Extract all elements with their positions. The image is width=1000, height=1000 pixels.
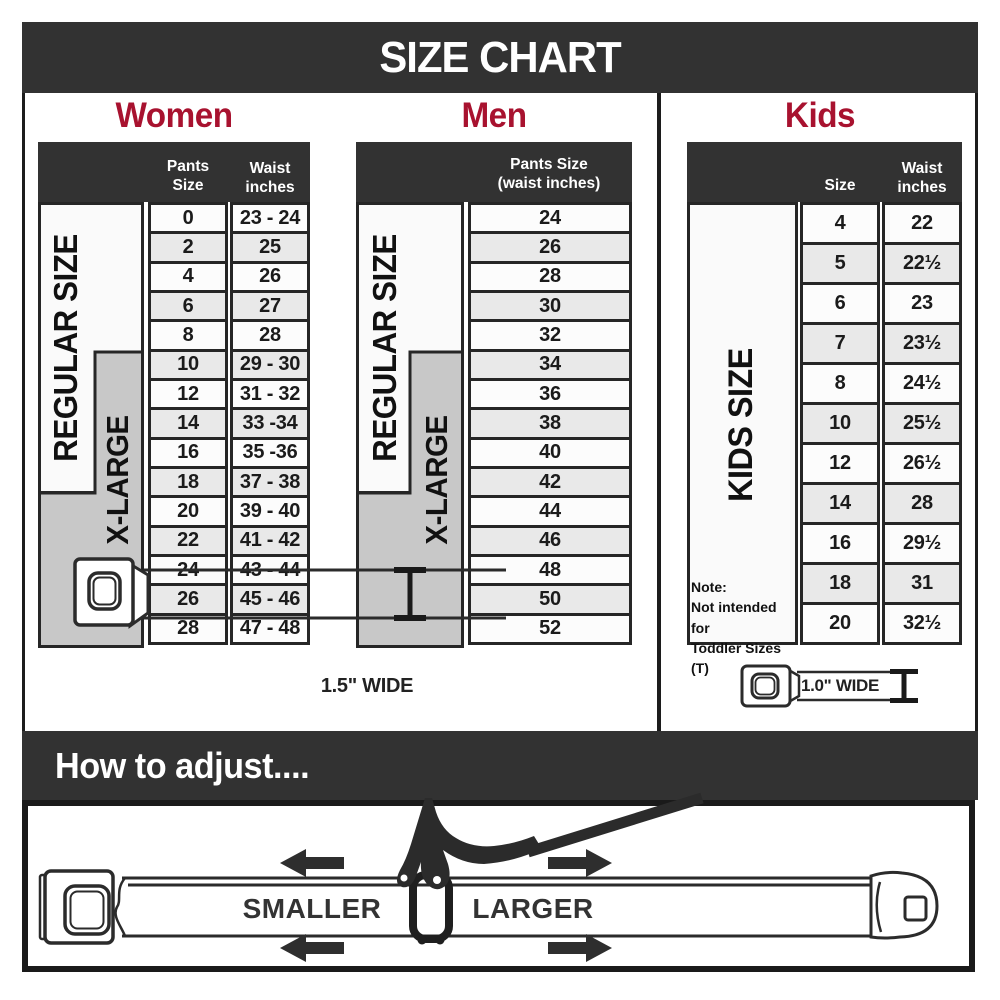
kids-size-cell: 16	[800, 522, 880, 565]
kids-size-cell: 18	[800, 562, 880, 605]
men-size-cell: 26	[468, 231, 632, 263]
women-pants-size-cell: 2	[148, 231, 228, 263]
kids-size-cell: 20	[800, 602, 880, 645]
women-waist-cell: 37 - 38	[230, 466, 310, 498]
women-waist-cell: 35 -36	[230, 437, 310, 469]
kids-size-cell: 14	[800, 482, 880, 525]
hand-thumbnail	[401, 875, 408, 882]
men-xlarge-band-label: X-LARGE	[419, 385, 455, 575]
kids-waist-cell: 25½	[882, 402, 962, 445]
men-col-header: Pants Size (waist inches)	[468, 155, 629, 193]
adult-belt-illustration	[68, 552, 518, 637]
men-size-cell: 38	[468, 407, 632, 439]
size-chart-page: SIZE CHART Women Men Kids Pants Size Wai…	[0, 0, 1000, 1000]
women-heading: Women	[79, 96, 269, 138]
kids-waist-cell: 28	[882, 482, 962, 525]
women-table-header: Pants Size Waist inches	[38, 142, 310, 202]
women-pants-size-cell: 4	[148, 261, 228, 293]
kids-size-cell: 8	[800, 362, 880, 405]
kids-waist-cell: 23	[882, 282, 962, 325]
women-regular-band-label: REGULAR SIZE	[48, 215, 84, 481]
women-waist-cell: 39 - 40	[230, 495, 310, 527]
men-size-cell: 32	[468, 319, 632, 351]
smaller-arrow-bottom-icon	[280, 934, 344, 962]
kids-size-column: 45678101214161820	[800, 202, 880, 645]
kids-size-cell: 10	[800, 402, 880, 445]
adjuster-foot-left	[418, 936, 427, 945]
kids-col1-header: Size	[801, 176, 879, 195]
kids-waist-column: 2222½2323½24½25½26½2829½3132½	[882, 202, 962, 645]
kids-waist-cell: 22½	[882, 242, 962, 285]
kids-col2-header: Waist inches	[883, 159, 961, 197]
larger-arrow-bottom-icon	[548, 934, 612, 962]
kids-section-divider	[657, 93, 661, 731]
kids-ibeam-bar	[902, 672, 907, 700]
women-waist-cell: 29 - 30	[230, 349, 310, 381]
adult-belt-width-label: 1.5" WIDE	[307, 675, 427, 698]
pull-strap	[528, 798, 702, 852]
hand-fingernail	[433, 876, 441, 884]
frame-right-border	[975, 93, 978, 731]
men-size-cell: 28	[468, 261, 632, 293]
adjust-belt-tip-hole	[905, 897, 926, 920]
kids-waist-cell: 22	[882, 202, 962, 245]
kids-size-cell: 5	[800, 242, 880, 285]
women-pants-size-cell: 10	[148, 349, 228, 381]
kids-waist-cell: 24½	[882, 362, 962, 405]
kids-size-cell: 6	[800, 282, 880, 325]
women-waist-cell: 23 - 24	[230, 202, 310, 234]
kids-buckle-slot-inner	[756, 678, 775, 695]
women-waist-cell: 26	[230, 261, 310, 293]
women-pants-size-cell: 0	[148, 202, 228, 234]
larger-label: LARGER	[433, 893, 633, 925]
men-heading: Men	[399, 96, 589, 138]
title-bar: SIZE CHART	[22, 22, 978, 93]
kids-size-cell: 4	[800, 202, 880, 245]
women-pants-size-cell: 18	[148, 466, 228, 498]
women-pants-size-cell: 16	[148, 437, 228, 469]
kids-waist-cell: 32½	[882, 602, 962, 645]
kids-waist-cell: 31	[882, 562, 962, 605]
smaller-label: SMALLER	[212, 893, 412, 925]
frame-left-border	[22, 93, 25, 731]
larger-arrow-top-icon	[548, 849, 612, 877]
women-waist-cell: 25	[230, 231, 310, 263]
kids-heading: Kids	[725, 96, 915, 138]
men-size-cell: 44	[468, 495, 632, 527]
men-size-cell: 24	[468, 202, 632, 234]
women-pants-size-cell: 12	[148, 378, 228, 410]
women-col2-header: Waist inches	[231, 159, 309, 197]
women-col1-header: Pants Size	[149, 157, 227, 195]
adjust-section-bar: How to adjust....	[22, 731, 978, 800]
men-size-cell: 40	[468, 437, 632, 469]
adult-belt-strap	[144, 570, 506, 618]
women-waist-cell: 33 -34	[230, 407, 310, 439]
adult-buckle-slot-inner	[94, 578, 116, 605]
kids-waist-cell: 23½	[882, 322, 962, 365]
men-size-cell: 34	[468, 349, 632, 381]
kids-size-cell: 12	[800, 442, 880, 485]
men-size-cell: 36	[468, 378, 632, 410]
women-waist-cell: 28	[230, 319, 310, 351]
men-regular-band-label: REGULAR SIZE	[367, 215, 403, 481]
women-pants-size-cell: 14	[148, 407, 228, 439]
adjust-strap-connector	[116, 878, 125, 936]
adjust-buckle-slot-inner	[71, 892, 104, 929]
men-size-cell: 30	[468, 290, 632, 322]
kids-waist-cell: 29½	[882, 522, 962, 565]
kids-size-cell: 7	[800, 322, 880, 365]
men-size-cell: 42	[468, 466, 632, 498]
adjust-heading: How to adjust....	[55, 745, 309, 787]
women-waist-cell: 31 - 32	[230, 378, 310, 410]
men-table-header: Pants Size (waist inches)	[356, 142, 632, 202]
adult-ibeam-bar	[408, 570, 413, 618]
kids-belt-width-label: 1.0" WIDE	[783, 676, 897, 696]
women-pants-size-cell: 6	[148, 290, 228, 322]
women-waist-cell: 27	[230, 290, 310, 322]
women-xlarge-band-label: X-LARGE	[100, 385, 136, 575]
women-pants-size-cell: 8	[148, 319, 228, 351]
kids-table-header: Size Waist inches	[687, 142, 962, 202]
kids-band-label: KIDS SIZE	[723, 321, 759, 530]
smaller-arrow-top-icon	[280, 849, 344, 877]
page-title: SIZE CHART	[379, 33, 620, 83]
adjust-belt-illustration	[28, 806, 969, 960]
kids-waist-cell: 26½	[882, 442, 962, 485]
adjuster-foot-right	[436, 936, 445, 945]
women-pants-size-cell: 20	[148, 495, 228, 527]
